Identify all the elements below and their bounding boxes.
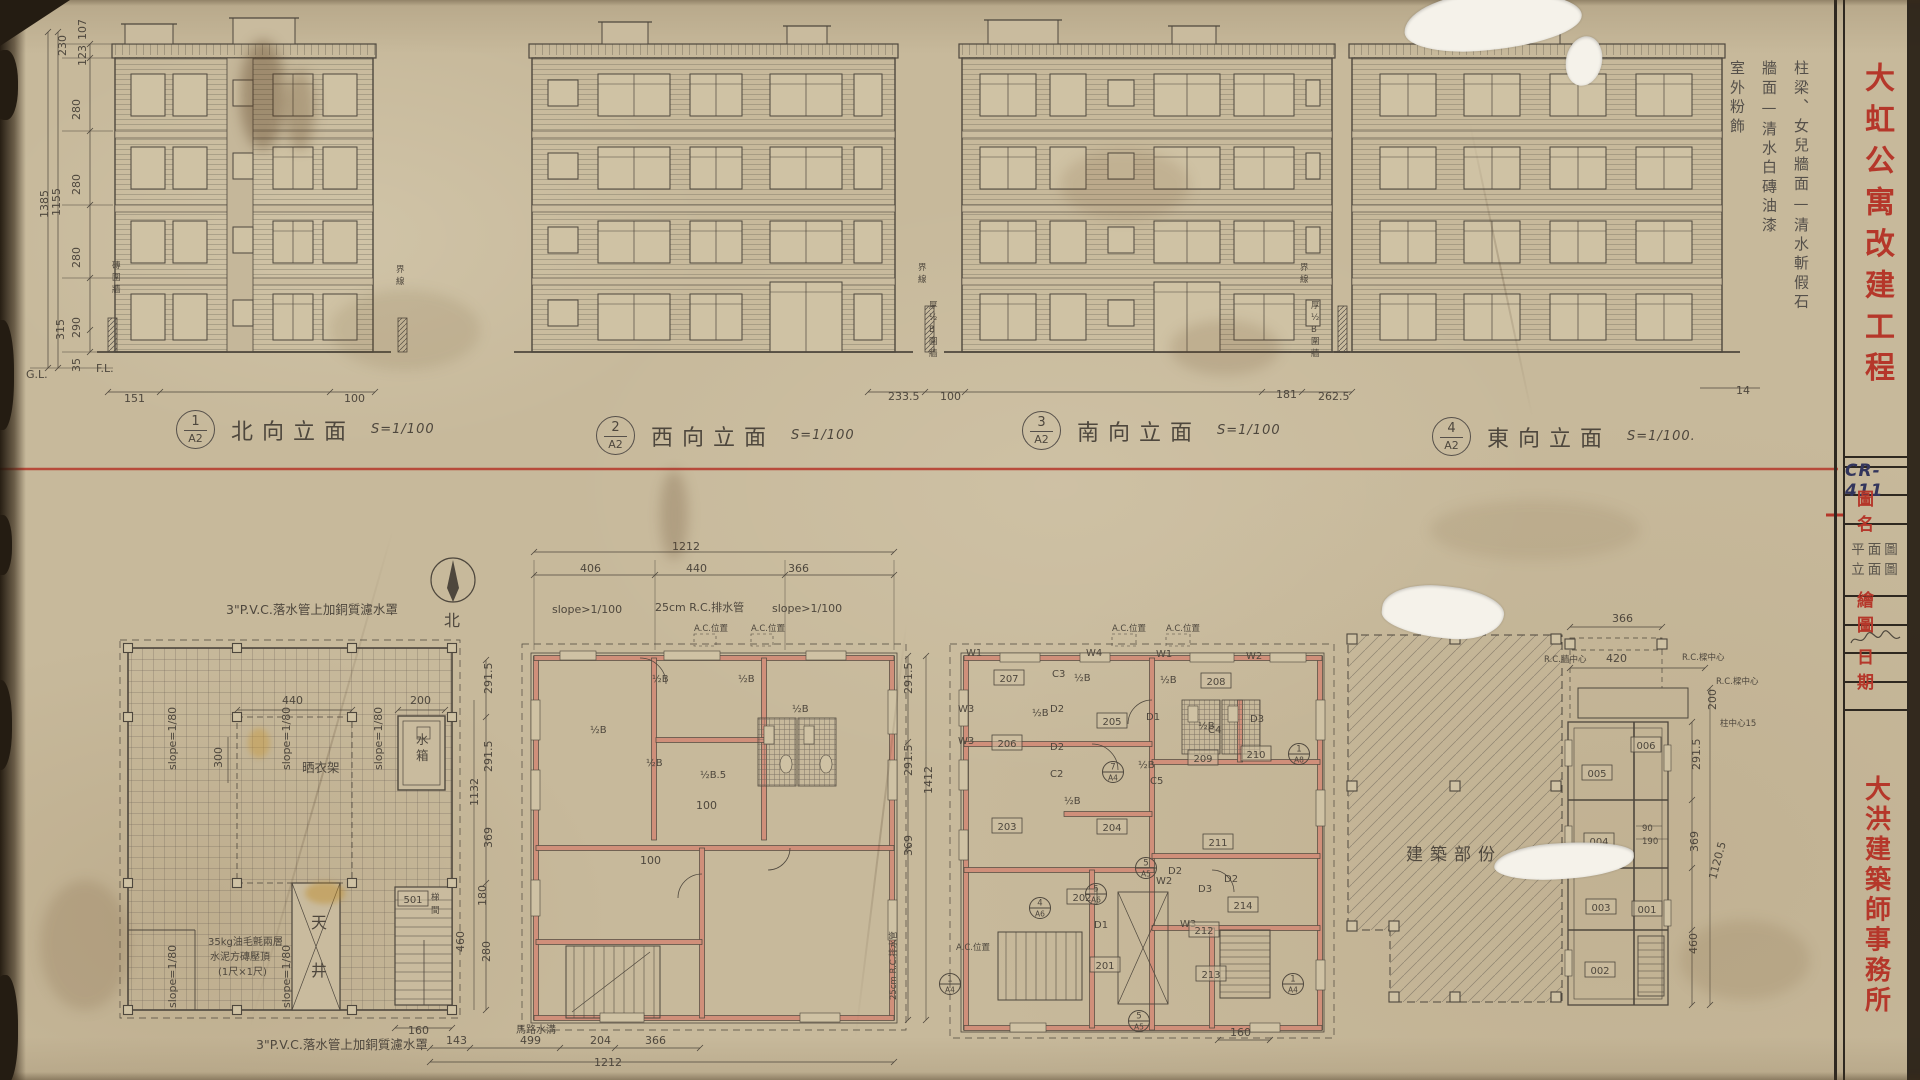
svg-text:A4: A4 xyxy=(1288,986,1298,995)
annotation-label: 90 xyxy=(1642,824,1653,834)
detail-ref-circle: 4 A2 xyxy=(1432,417,1471,456)
svg-text:202: 202 xyxy=(1072,893,1091,904)
drawing-name-2: 立面圖 xyxy=(1851,560,1901,580)
annotation-label: 1155 xyxy=(50,188,63,216)
annotation-label: 280 xyxy=(70,99,83,120)
titleblock-border-line xyxy=(1834,0,1837,1080)
annotation-label: A.C.位置 xyxy=(694,623,729,634)
annotation-label: 磚圍牆 xyxy=(112,260,121,295)
annotation-label: ½B xyxy=(1160,674,1177,686)
elevation-caption-east: 4 A2 東向立面 S=1/100. xyxy=(1432,417,1696,456)
room-tag: 209 xyxy=(1188,750,1218,765)
annotation-label: 180 xyxy=(476,885,489,906)
annotation-label: 440 xyxy=(282,694,303,707)
annotation-label: 100 xyxy=(696,799,717,812)
annotation-label: ½B.5 xyxy=(700,769,726,781)
section-marker: 5A6 xyxy=(1086,884,1107,905)
svg-text:A4: A4 xyxy=(1108,774,1118,783)
room-tag: 006 xyxy=(1631,737,1661,752)
annotation-label: slope=1/80 xyxy=(372,707,385,770)
room-tag: 001 xyxy=(1632,901,1662,916)
annotation-label: 280 xyxy=(70,174,83,195)
annotation-label: 厚½B圍牆 xyxy=(929,301,938,359)
annotation-label: D2 xyxy=(1050,704,1064,715)
annotation-label: 230 xyxy=(56,35,69,56)
svg-text:006: 006 xyxy=(1636,741,1655,752)
drawing-name-1: 平面圖 xyxy=(1851,540,1901,560)
annotation-label: 460 xyxy=(454,931,467,952)
elevation-building xyxy=(97,18,391,352)
svg-text:210: 210 xyxy=(1246,750,1265,761)
annotation-label: 190 xyxy=(1642,837,1658,847)
office-cell: 大洪建築師事務所 xyxy=(1845,711,1907,1080)
annotation-label: 204 xyxy=(590,1034,611,1047)
annotation-label: 35 xyxy=(70,358,83,372)
annotation-label: G.L. xyxy=(26,368,48,381)
annotation-label: slope=1/80 xyxy=(280,945,293,1008)
scan-edge-bottom xyxy=(0,1072,1920,1080)
annotation-label: 366 xyxy=(788,562,809,575)
elevation-caption-west: 2 A2 西向立面 S=1/100 xyxy=(596,416,855,455)
annotation-label: D3 xyxy=(1250,714,1264,725)
annotation-label: D1 xyxy=(1094,920,1108,931)
elevation-title: 東向立面 xyxy=(1487,421,1611,453)
detail-ref-circle: 1 A2 xyxy=(176,410,215,449)
annotation-label: 181 xyxy=(1276,388,1297,401)
annotation-label: W3 xyxy=(958,736,974,747)
room-tag: 005 xyxy=(1582,765,1612,780)
svg-text:4: 4 xyxy=(1037,899,1042,909)
annotation-label: C3 xyxy=(1052,669,1065,680)
annotation-label: 柱中心15 xyxy=(1720,718,1756,729)
annotation-label: 143 xyxy=(446,1034,467,1047)
annotation-label: slope=1/80 xyxy=(166,707,179,770)
room-tag: 204 xyxy=(1097,819,1127,834)
annotation-label: ½B xyxy=(1138,759,1155,771)
scan-edge-top xyxy=(0,0,1920,6)
annotation-label: D2 xyxy=(1224,874,1238,885)
room-tag: 206 xyxy=(992,735,1022,750)
section-marker: 5A5 xyxy=(1136,858,1157,879)
elevation-caption-south: 3 A2 南向立面 S=1/100 xyxy=(1022,411,1281,450)
annotation-label: 35kg油毛氈兩層 xyxy=(208,935,283,948)
project-title-cell: 大虹公寓改建工程 xyxy=(1845,0,1907,458)
annotation-label: ½B xyxy=(1064,795,1081,807)
detail-ref-circle: 3 A2 xyxy=(1022,411,1061,450)
svg-text:213: 213 xyxy=(1201,970,1220,981)
annotation-label: 馬路水溝 xyxy=(516,1023,556,1036)
annotation-label: ½B xyxy=(1074,672,1091,684)
annotation-label: 100 xyxy=(344,392,365,405)
annotation-label: 1412 xyxy=(922,766,935,794)
annotation-label: 315 xyxy=(54,319,67,340)
svg-text:7: 7 xyxy=(1110,763,1115,773)
svg-text:214: 214 xyxy=(1233,901,1252,912)
finish-note-line: 柱梁、女兒牆面—清水斬假石 xyxy=(1791,60,1812,380)
svg-text:1: 1 xyxy=(1296,745,1301,755)
elevation-building xyxy=(514,22,913,352)
annotation-label: ½B xyxy=(590,724,607,736)
elevation-scale: S=1/100 xyxy=(371,422,435,437)
scan-edge-right xyxy=(1909,0,1920,1080)
finish-note-line: 室外粉飾 xyxy=(1727,60,1748,380)
annotation-label: R.C.牆中心 xyxy=(1544,654,1587,665)
svg-text:A5: A5 xyxy=(1134,1023,1144,1032)
room-tag: 208 xyxy=(1201,673,1231,688)
elevation-building xyxy=(1334,22,1740,352)
detail-ref-circle: 2 A2 xyxy=(596,416,635,455)
svg-text:003: 003 xyxy=(1591,903,1610,914)
annotation-label: 建築部份 xyxy=(1406,845,1502,865)
elevation-scale: S=1/100 xyxy=(791,428,855,443)
finish-note-line: 牆面—清水白磚油漆 xyxy=(1759,60,1780,380)
drawn-by-label: 繪圖 xyxy=(1845,597,1907,626)
annotation-label: ½B xyxy=(652,673,669,685)
section-marker: 4A6 xyxy=(1030,898,1051,919)
date-label: 日期 xyxy=(1845,654,1907,683)
annotation-label: W1 xyxy=(1156,649,1172,660)
room-tag: 210 xyxy=(1241,746,1271,761)
svg-text:A8: A8 xyxy=(1294,756,1304,765)
svg-text:A6: A6 xyxy=(1035,910,1045,919)
annotation-label: 280 xyxy=(480,941,493,962)
annotation-label: A.C.位置 xyxy=(1166,623,1201,634)
svg-text:205: 205 xyxy=(1102,717,1121,728)
annotation-label: A.C.位置 xyxy=(751,623,786,634)
annotation-label: 151 xyxy=(124,392,145,405)
annotation-label: D3 xyxy=(1198,884,1212,895)
svg-text:1: 1 xyxy=(1290,975,1295,985)
room-tag: 002 xyxy=(1585,962,1615,977)
svg-text:201: 201 xyxy=(1095,961,1114,972)
svg-text:212: 212 xyxy=(1194,926,1213,937)
annotation-label: (1尺×1尺) xyxy=(218,966,267,978)
annotation-label: 291.5 xyxy=(902,663,915,695)
annotation-label: ½B xyxy=(1032,707,1049,719)
annotation-label: 25cm R.C.排水管 xyxy=(888,931,899,1000)
section-marker: 1A4 xyxy=(940,974,961,995)
room-tag: 201 xyxy=(1090,957,1120,972)
annotation-label: 369 xyxy=(1688,831,1701,852)
annotation-label: ½B xyxy=(1198,720,1215,732)
svg-text:204: 204 xyxy=(1102,823,1121,834)
annotation-label: 160 xyxy=(408,1024,429,1037)
room-tag: 211 xyxy=(1203,834,1233,849)
annotation-label: W3 xyxy=(958,704,974,715)
finish-notes: 柱梁、女兒牆面—清水斬假石 牆面—清水白磚油漆 室外粉飾 xyxy=(1716,60,1812,380)
annotation-label: D2 xyxy=(1168,866,1182,877)
svg-text:1: 1 xyxy=(947,975,952,985)
annotation-label: F.L. xyxy=(96,362,114,375)
annotation-label: slope>1/100 xyxy=(552,603,622,616)
annotation-label: 300 xyxy=(212,747,225,768)
annotation-label: 160 xyxy=(1230,1026,1251,1039)
annotation-label: 北 xyxy=(444,611,460,630)
room-tag: 214 xyxy=(1228,897,1258,912)
annotation-label: D2 xyxy=(1050,742,1064,753)
svg-text:A5: A5 xyxy=(1141,870,1151,879)
office-name: 大洪建築師事務所 xyxy=(1858,775,1895,1016)
annotation-label: ½B xyxy=(792,703,809,715)
elevation-title: 西向立面 xyxy=(651,420,775,452)
section-marker: 7A4 xyxy=(1103,762,1124,783)
room-tag: 501 xyxy=(398,891,428,906)
section-marker: 5A5 xyxy=(1129,1011,1150,1032)
annotation-label: W1 xyxy=(966,648,982,659)
annotation-label: C2 xyxy=(1050,769,1063,780)
svg-text:207: 207 xyxy=(999,674,1018,685)
annotation-label: 460 xyxy=(1687,933,1700,954)
annotation-label: W4 xyxy=(1086,648,1102,659)
annotation-label: 280 xyxy=(70,247,83,268)
annotation-label: slope>1/100 xyxy=(772,602,842,615)
elevation-building xyxy=(944,20,1350,352)
annotation-label: 1212 xyxy=(594,1056,622,1069)
svg-text:203: 203 xyxy=(997,822,1016,833)
drawing-canvas: 151100233.5100181262.5142301071232802802… xyxy=(0,0,1920,1080)
annotation-label: 200 xyxy=(410,694,431,707)
elevation-caption-north: 1 A2 北向立面 S=1/100 xyxy=(176,410,435,449)
elevation-title: 南向立面 xyxy=(1077,415,1201,447)
annotation-label: 369 xyxy=(482,827,495,848)
annotation-label: 水泥方磚壓頂 xyxy=(210,950,270,963)
annotation-label: 100 xyxy=(640,854,661,867)
svg-text:005: 005 xyxy=(1587,769,1606,780)
annotation-label: R.C.樑中心 xyxy=(1716,676,1759,687)
annotation-label: slope=1/80 xyxy=(280,707,293,770)
annotation-label: 291.5 xyxy=(482,663,495,695)
annotation-label: 291.5 xyxy=(902,745,915,777)
annotation-label: C5 xyxy=(1150,776,1163,787)
annotation-label: ½B xyxy=(646,757,663,769)
room-tag: 212 xyxy=(1189,922,1219,937)
annotation-label: slope=1/80 xyxy=(166,945,179,1008)
svg-text:208: 208 xyxy=(1206,677,1225,688)
elevation-title: 北向立面 xyxy=(231,414,355,446)
svg-text:501: 501 xyxy=(403,895,422,906)
annotation-label: 晒衣架 xyxy=(302,760,340,775)
svg-text:211: 211 xyxy=(1208,838,1227,849)
room-tag: 003 xyxy=(1586,899,1616,914)
annotation-label: 107 xyxy=(76,19,89,40)
room-tag: 207 xyxy=(994,670,1024,685)
annotation-label: 406 xyxy=(580,562,601,575)
annotation-label: 界線 xyxy=(396,265,405,287)
svg-text:A4: A4 xyxy=(945,986,955,995)
annotation-label: 200 xyxy=(1706,689,1719,710)
annotation-label: 123 xyxy=(76,45,89,66)
svg-text:206: 206 xyxy=(997,739,1016,750)
annotation-label: 3"P.V.C.落水管上加銅質濾水罩 xyxy=(256,1037,428,1052)
annotation-label: W2 xyxy=(1156,876,1172,887)
annotation-label: 420 xyxy=(1606,652,1627,665)
annotation-label: 水箱 xyxy=(416,732,429,763)
annotation-label: 369 xyxy=(902,835,915,856)
annotation-label: 290 xyxy=(70,317,83,338)
annotation-label: 界線 xyxy=(918,263,927,285)
svg-text:5: 5 xyxy=(1143,859,1148,869)
annotation-label: A.C.位置 xyxy=(956,942,991,953)
section-marker: 1A8 xyxy=(1289,744,1310,765)
svg-text:5: 5 xyxy=(1136,1012,1141,1022)
room-tag: 205 xyxy=(1097,713,1127,728)
elevation-scale: S=1/100. xyxy=(1627,429,1696,444)
annotation-label: 1132 xyxy=(468,778,481,806)
annotation-label: 14 xyxy=(1736,384,1750,397)
annotation-label: 262.5 xyxy=(1318,390,1350,403)
annotation-label: 291.5 xyxy=(482,741,495,773)
annotation-label: 291.5 xyxy=(1690,739,1703,771)
annotation-label: 25cm R.C.排水管 xyxy=(655,600,744,614)
section-marker: 1A4 xyxy=(1283,974,1304,995)
annotation-label: W2 xyxy=(1246,651,1262,662)
annotation-label: A.C.位置 xyxy=(1112,623,1147,634)
annotation-label: 233.5 xyxy=(888,390,920,403)
svg-text:A6: A6 xyxy=(1091,896,1101,905)
annotation-label: D1 xyxy=(1146,712,1160,723)
elevations-drawing xyxy=(30,18,1760,395)
annotation-label: 3"P.V.C.落水管上加銅質濾水罩 xyxy=(226,602,398,617)
annotation-label: 366 xyxy=(645,1034,666,1047)
annotation-label: ½B xyxy=(738,673,755,685)
svg-text:5: 5 xyxy=(1093,885,1098,895)
annotation-label: 1212 xyxy=(672,540,700,553)
svg-text:001: 001 xyxy=(1637,905,1656,916)
annotation-label: R.C.樑中心 xyxy=(1682,652,1725,663)
svg-text:002: 002 xyxy=(1590,966,1609,977)
room-tag: 203 xyxy=(992,818,1022,833)
svg-text:209: 209 xyxy=(1193,754,1212,765)
annotation-label: 366 xyxy=(1612,612,1633,625)
elevation-scale: S=1/100 xyxy=(1217,423,1281,438)
project-title: 大虹公寓改建工程 xyxy=(1854,62,1898,393)
empty-cell xyxy=(1845,683,1907,711)
drawing-name-label: 圖名 xyxy=(1845,496,1907,525)
blueprint-sheet: 151100233.5100181262.5142301071232802802… xyxy=(0,0,1920,1080)
annotation-label: 100 xyxy=(940,390,961,403)
titleblock: 大虹公寓改建工程 CR-411 圖名 平面圖 立面圖 繪圖 日期 大洪建築師事務… xyxy=(1843,0,1909,1080)
room-tag: 213 xyxy=(1196,966,1226,981)
annotation-label: 440 xyxy=(686,562,707,575)
